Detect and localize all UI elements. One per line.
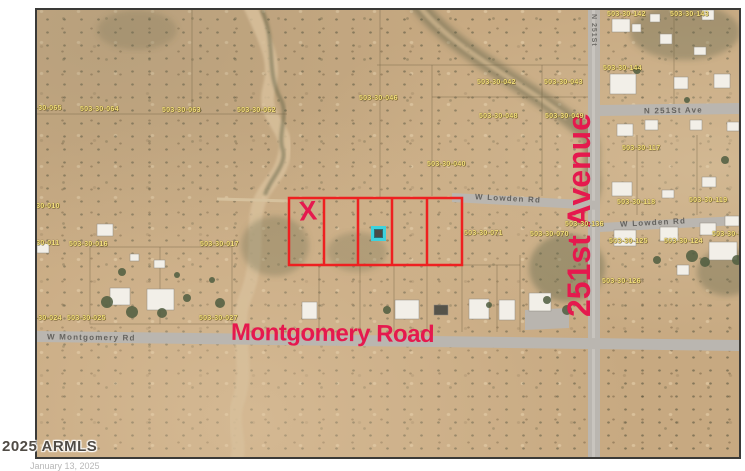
aerial-parcel-map: W Montgomery Rd W Lowden Rd W Lowden Rd … (35, 8, 741, 459)
parcel-number: 503-30-043 (544, 79, 583, 86)
subject-parcel-marker (371, 226, 386, 241)
parcel-number: 503-30-071 (464, 230, 503, 237)
montgomery-road-overlay-label: Montgomery Road (231, 319, 434, 349)
parcel-number: 503-30-065 (35, 105, 62, 112)
parcel-number: 503-30-063 (162, 107, 201, 114)
parcel-number: 503-30-144 (603, 65, 642, 72)
parcel-number: 503-30-142 (607, 11, 646, 18)
parcel-number: 503-30-011 (35, 240, 59, 247)
parcel-number: 503-30-070 (530, 231, 569, 238)
road-label-n-251st-vertical: N 251St (590, 14, 597, 47)
parcel-number: 503-30-136 (565, 221, 604, 228)
vegetation-clusters (97, 10, 739, 302)
parcel-number: 503-30-125 (609, 238, 648, 245)
parcel-number: 503-30-143 (670, 11, 709, 18)
parcel-number: 503-30-117 (622, 145, 660, 152)
map-feature-layer (37, 10, 739, 457)
parcel-number: 503-30-016 (69, 241, 108, 248)
parcel-number: 503-30-118 (617, 199, 655, 206)
parcel-number: 503-30-126 (602, 278, 641, 285)
parcel-number: 503-30-119 (689, 197, 727, 204)
parcel-number: 503-30-025 (67, 315, 106, 322)
parcel-number: 503-30-046 (359, 95, 398, 102)
parcel-number: 503-30-123 (712, 231, 741, 238)
road-label-n-251st-ave: N 251St Ave (644, 105, 703, 115)
parcel-number: 503-30-062 (237, 107, 276, 114)
listing-map-page: { "map": { "watermark": "2025 ARMLS", "f… (0, 0, 745, 468)
footer-date-partial: January 13, 2025 (30, 461, 100, 471)
parcel-number: 503-30-064 (80, 106, 119, 113)
armls-watermark: 2025 ARMLS (2, 438, 97, 455)
parcel-number: 503-30-010 (35, 203, 60, 210)
houses (37, 10, 739, 320)
x-marker: X (298, 195, 318, 227)
parcel-number: 503-30-042 (477, 79, 516, 86)
parcel-number: 503-30-040 (427, 161, 466, 168)
parcel-number: 503-30-024 (35, 315, 62, 322)
road-label-w-montgomery: W Montgomery Rd (47, 332, 136, 342)
parcel-number: 503-30-049 (545, 113, 584, 120)
parcel-number: 503-30-124 (664, 238, 703, 245)
parcel-number: 503-30-048 (479, 113, 518, 120)
trees (101, 66, 739, 318)
parcel-number: 503-30-027 (199, 315, 238, 322)
parcel-number: 503-30-017 (200, 241, 239, 248)
